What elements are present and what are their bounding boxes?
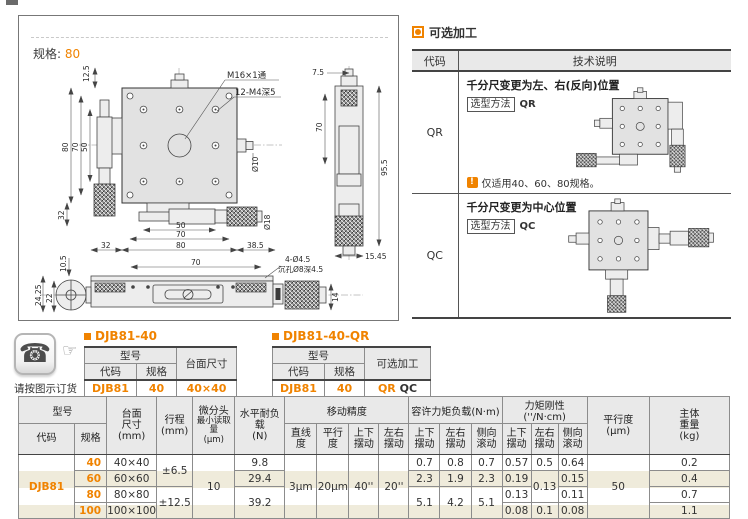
dim-label-m4: 12-M4深5 [235, 88, 276, 98]
dim-label-f-sink: 沉孔Ø8深4.5 [278, 265, 323, 274]
cell-parallelism: 20μm [317, 455, 349, 519]
hdr-travel: 行程(mm) [157, 397, 193, 455]
order-note: ☎ ☞ 请按图示订货 [14, 333, 84, 396]
col-header-code: 代码 [273, 364, 325, 381]
header-row-groups: 型号 台面尺寸(mm) 行程(mm) 微分头最小读取量(μm) 水平耐负载(N)… [19, 397, 730, 424]
dim-label-80l: 80 [61, 142, 70, 152]
cell-third-b: QC [400, 382, 417, 395]
col-header-code: 代码 [85, 364, 137, 381]
cell-third: QR QC [365, 380, 431, 397]
pointing-hand-icon: ☞ [62, 341, 77, 361]
cell-load: 29.4 [235, 471, 285, 487]
cell-size: 80×80 [107, 487, 157, 503]
qr-option-drawing [567, 86, 717, 174]
cell-moment-roll: 0.7 [471, 455, 502, 471]
hdr-spec: 规格 [75, 424, 107, 455]
hdr-rigidity-group: 力矩刚性(''/N·cm) [502, 397, 587, 424]
spec-value: 80 [65, 47, 80, 61]
dim-label-s7-5: 7.5 [312, 68, 324, 77]
dim-label-b32: 32 [101, 241, 111, 250]
hdr-moment-pitch: 上下摆动 [409, 424, 440, 455]
hdr-accuracy-group: 移动精度 [285, 397, 409, 424]
phone-icon: ☎ [19, 341, 51, 367]
example-table: 型号 台面尺寸 代码 规格 DJB81 40 40×40 [84, 346, 237, 398]
hdr-micrometer: 微分头最小读取量(μm) [193, 397, 235, 455]
col-header-spec: 规格 [137, 364, 177, 381]
example-table-djb81-40-qr: DJB81-40-QR 型号 可选加工 代码 规格 DJB81 40 QR QC [272, 329, 431, 398]
cell-size: 60×60 [107, 471, 157, 487]
order-caption: 请按图示订货 [14, 381, 84, 396]
method-label: 选型方法 [467, 219, 515, 234]
dim-label-s95-5: 95.5 [380, 159, 389, 176]
hdr-straightness: 直线度 [285, 424, 317, 455]
cell-weight: 0.7 [649, 487, 729, 503]
cell-spec: 40 [75, 455, 107, 471]
dim-label-b38-5: 38.5 [247, 241, 264, 250]
cell-moment-pitch: 2.3 [409, 471, 440, 487]
col-header-description: 技术说明 [458, 50, 731, 71]
cell-rigidity-roll: 0.15 [558, 471, 587, 487]
dim-label-32l: 32 [57, 210, 66, 220]
option-code-qc: QC [412, 193, 458, 318]
hdr-table-size: 台面尺寸(mm) [107, 397, 157, 455]
cell-moment-roll: 5.1 [471, 487, 502, 519]
hdr-parallelism-um: 平行度(μm) [587, 397, 649, 455]
optional-machining-title: 可选加工 [429, 24, 477, 41]
hdr-rigidity-roll: 侧向滚动 [558, 424, 587, 455]
dim-label-b70: 70 [176, 230, 186, 239]
optional-table-header-row: 代码 技术说明 [412, 50, 731, 71]
cell-third-a: 40×40 [187, 382, 227, 395]
cell-parallelism-um: 50 [587, 455, 649, 519]
cell-rigidity-pitch: 0.57 [502, 455, 531, 471]
cell-spec: 60 [75, 471, 107, 487]
dim-label-s70: 70 [315, 122, 324, 132]
cell-spec: 40 [325, 380, 365, 397]
cell-rigidity-pitch: 0.19 [502, 471, 531, 487]
hdr-weight: 主体重量(kg) [649, 397, 729, 455]
cell-weight: 0.2 [649, 455, 729, 471]
cell-code: DJB81 [19, 455, 75, 519]
col-header-third: 可选加工 [365, 347, 431, 380]
cell-travel: ±12.5 [157, 487, 193, 519]
dim-label-12-5: 12.5 [82, 65, 91, 82]
method-label: 选型方法 [467, 97, 515, 112]
spec-label: 规格: [33, 47, 61, 61]
hdr-yaw: 左右摆动 [379, 424, 409, 455]
cell-spec: 100 [75, 503, 107, 519]
example-title-row: DJB81-40-QR [272, 329, 431, 343]
cell-rigidity-roll: 0.08 [558, 503, 587, 519]
col-header-code: 代码 [412, 50, 458, 71]
hdr-moment-yaw: 左右摆动 [440, 424, 471, 455]
spec-table-container: 型号 台面尺寸(mm) 行程(mm) 微分头最小读取量(μm) 水平耐负载(N)… [18, 396, 730, 519]
option-code-qr: QR [412, 71, 458, 193]
dim-label-f22: 22 [45, 293, 54, 303]
dim-label-f10-5: 10.5 [59, 255, 68, 272]
cell-spec: 80 [75, 487, 107, 503]
cell-rigidity-yaw: 0.5 [531, 455, 558, 471]
bullet-icon [84, 333, 91, 340]
example-table-djb81-40: DJB81-40 型号 台面尺寸 代码 规格 DJB81 40 40×40 [84, 329, 237, 398]
spec-row-40: DJB81 40 40×40 ±6.5 10 9.8 3μm 20μm 40''… [19, 455, 730, 471]
dim-label-b80: 80 [176, 241, 186, 250]
cell-code: DJB81 [273, 380, 325, 397]
dim-label-70l: 70 [71, 142, 80, 152]
cell-rigidity-yaw: 0.13 [531, 471, 558, 503]
cell-rigidity-yaw: 0.1 [531, 503, 558, 519]
cell-yaw: 20'' [379, 455, 409, 519]
drawing-panel: 规格: 80 [18, 15, 399, 321]
dim-label-f70: 70 [191, 258, 201, 267]
cell-rigidity-pitch: 0.08 [502, 503, 531, 519]
front-view-drawing: 70 4-Ø4.5 沉孔Ø8深4.5 10.5 24.25 22 14 [33, 254, 373, 318]
cell-moment-pitch: 0.7 [409, 455, 440, 471]
dim-label-50l: 50 [80, 142, 89, 152]
main-top-view-drawing: M16×1通 12-M4深5 Ø10 Ø18 12.5 80 70 50 32 … [27, 60, 305, 260]
dim-label-dia10: Ø10 [251, 156, 260, 172]
option-note-qr: ! 仅适用40、60、80规格。 [467, 175, 600, 190]
dim-label-f24-25: 24.25 [34, 284, 43, 306]
method-value: QC [520, 221, 536, 232]
option-desc-qc: 千分尺变更为中心位置 选型方法 QC [458, 193, 731, 318]
cell-rigidity-roll: 0.11 [558, 487, 587, 503]
warning-icon: ! [467, 177, 478, 188]
hdr-moment-roll: 侧向滚动 [471, 424, 502, 455]
cell-micro: 10 [193, 455, 235, 519]
option-row-qc: QC 千分尺变更为中心位置 选型方法 QC [412, 193, 731, 318]
example-title-row: DJB81-40 [84, 329, 237, 343]
hdr-moment-group: 容许力矩负载(N·m) [409, 397, 502, 424]
dashed-divider [31, 37, 388, 38]
cell-third-a: QR [378, 382, 396, 395]
cell-code: DJB81 [85, 380, 137, 397]
optional-machining-table: 代码 技术说明 QR 千分尺变更为左、右(反向)位置 选型方法 QR [412, 49, 731, 319]
hdr-pitch: 上下摆动 [349, 424, 379, 455]
dim-label-f-holes: 4-Ø4.5 [285, 255, 311, 264]
cell-moment-roll: 2.3 [471, 471, 502, 487]
cell-rigidity-pitch: 0.13 [502, 487, 531, 503]
hdr-code: 代码 [19, 424, 75, 455]
cell-weight: 0.4 [649, 471, 729, 487]
optional-machining-panel: 可选加工 代码 技术说明 QR 千分尺变更为左、右(反向)位置 选型方法 QR [412, 24, 731, 319]
dim-label-dia18: Ø18 [263, 214, 272, 230]
hdr-model: 型号 [19, 397, 107, 424]
cell-straightness: 3μm [285, 455, 317, 519]
cell-third: 40×40 [177, 380, 237, 397]
col-header-model: 型号 [85, 347, 177, 364]
qc-option-drawing [547, 198, 725, 316]
page-edge-mark [6, 0, 18, 5]
cell-size: 100×100 [107, 503, 157, 519]
method-value: QR [520, 99, 536, 110]
hdr-rigidity-yaw: 左右摆动 [531, 424, 558, 455]
cell-moment-yaw: 4.2 [440, 487, 471, 519]
cell-spec: 40 [137, 380, 177, 397]
cell-pitch: 40'' [349, 455, 379, 519]
option-desc-qr: 千分尺变更为左、右(反向)位置 选型方法 QR [458, 71, 731, 193]
side-view-drawing: 7.5 70 95.5 15.45 [297, 64, 397, 262]
cell-travel: ±6.5 [157, 455, 193, 487]
dim-label-b50: 50 [176, 221, 186, 230]
hdr-load: 水平耐负载(N) [235, 397, 285, 455]
cell-moment-yaw: 1.9 [440, 471, 471, 487]
cell-moment-yaw: 0.8 [440, 455, 471, 471]
example-title: DJB81-40-QR [283, 329, 369, 343]
example-title: DJB81-40 [95, 329, 157, 343]
section-bullet-icon [412, 26, 424, 38]
catalog-page: 规格: 80 [0, 0, 748, 512]
option-note-text: 仅适用40、60、80规格。 [482, 175, 600, 190]
bullet-icon [272, 333, 279, 340]
col-header-spec: 规格 [325, 364, 365, 381]
cell-weight: 1.1 [649, 503, 729, 519]
option-row-qr: QR 千分尺变更为左、右(反向)位置 选型方法 QR [412, 71, 731, 193]
hdr-rigidity-pitch: 上下摆动 [502, 424, 531, 455]
cell-moment-pitch: 5.1 [409, 487, 440, 519]
hdr-parallelism: 平行度 [317, 424, 349, 455]
cell-size: 40×40 [107, 455, 157, 471]
col-header-third: 台面尺寸 [177, 347, 237, 380]
cell-rigidity-roll: 0.64 [558, 455, 587, 471]
example-table: 型号 可选加工 代码 规格 DJB81 40 QR QC [272, 346, 431, 398]
cell-load: 39.2 [235, 487, 285, 519]
dim-label-f14: 14 [331, 292, 340, 302]
dim-label-m16: M16×1通 [227, 70, 267, 81]
cell-load: 9.8 [235, 455, 285, 471]
phone-order-button[interactable]: ☎ [14, 333, 56, 375]
optional-machining-header: 可选加工 [412, 24, 731, 40]
col-header-model: 型号 [273, 347, 365, 364]
spec-table: 型号 台面尺寸(mm) 行程(mm) 微分头最小读取量(μm) 水平耐负载(N)… [18, 396, 730, 519]
